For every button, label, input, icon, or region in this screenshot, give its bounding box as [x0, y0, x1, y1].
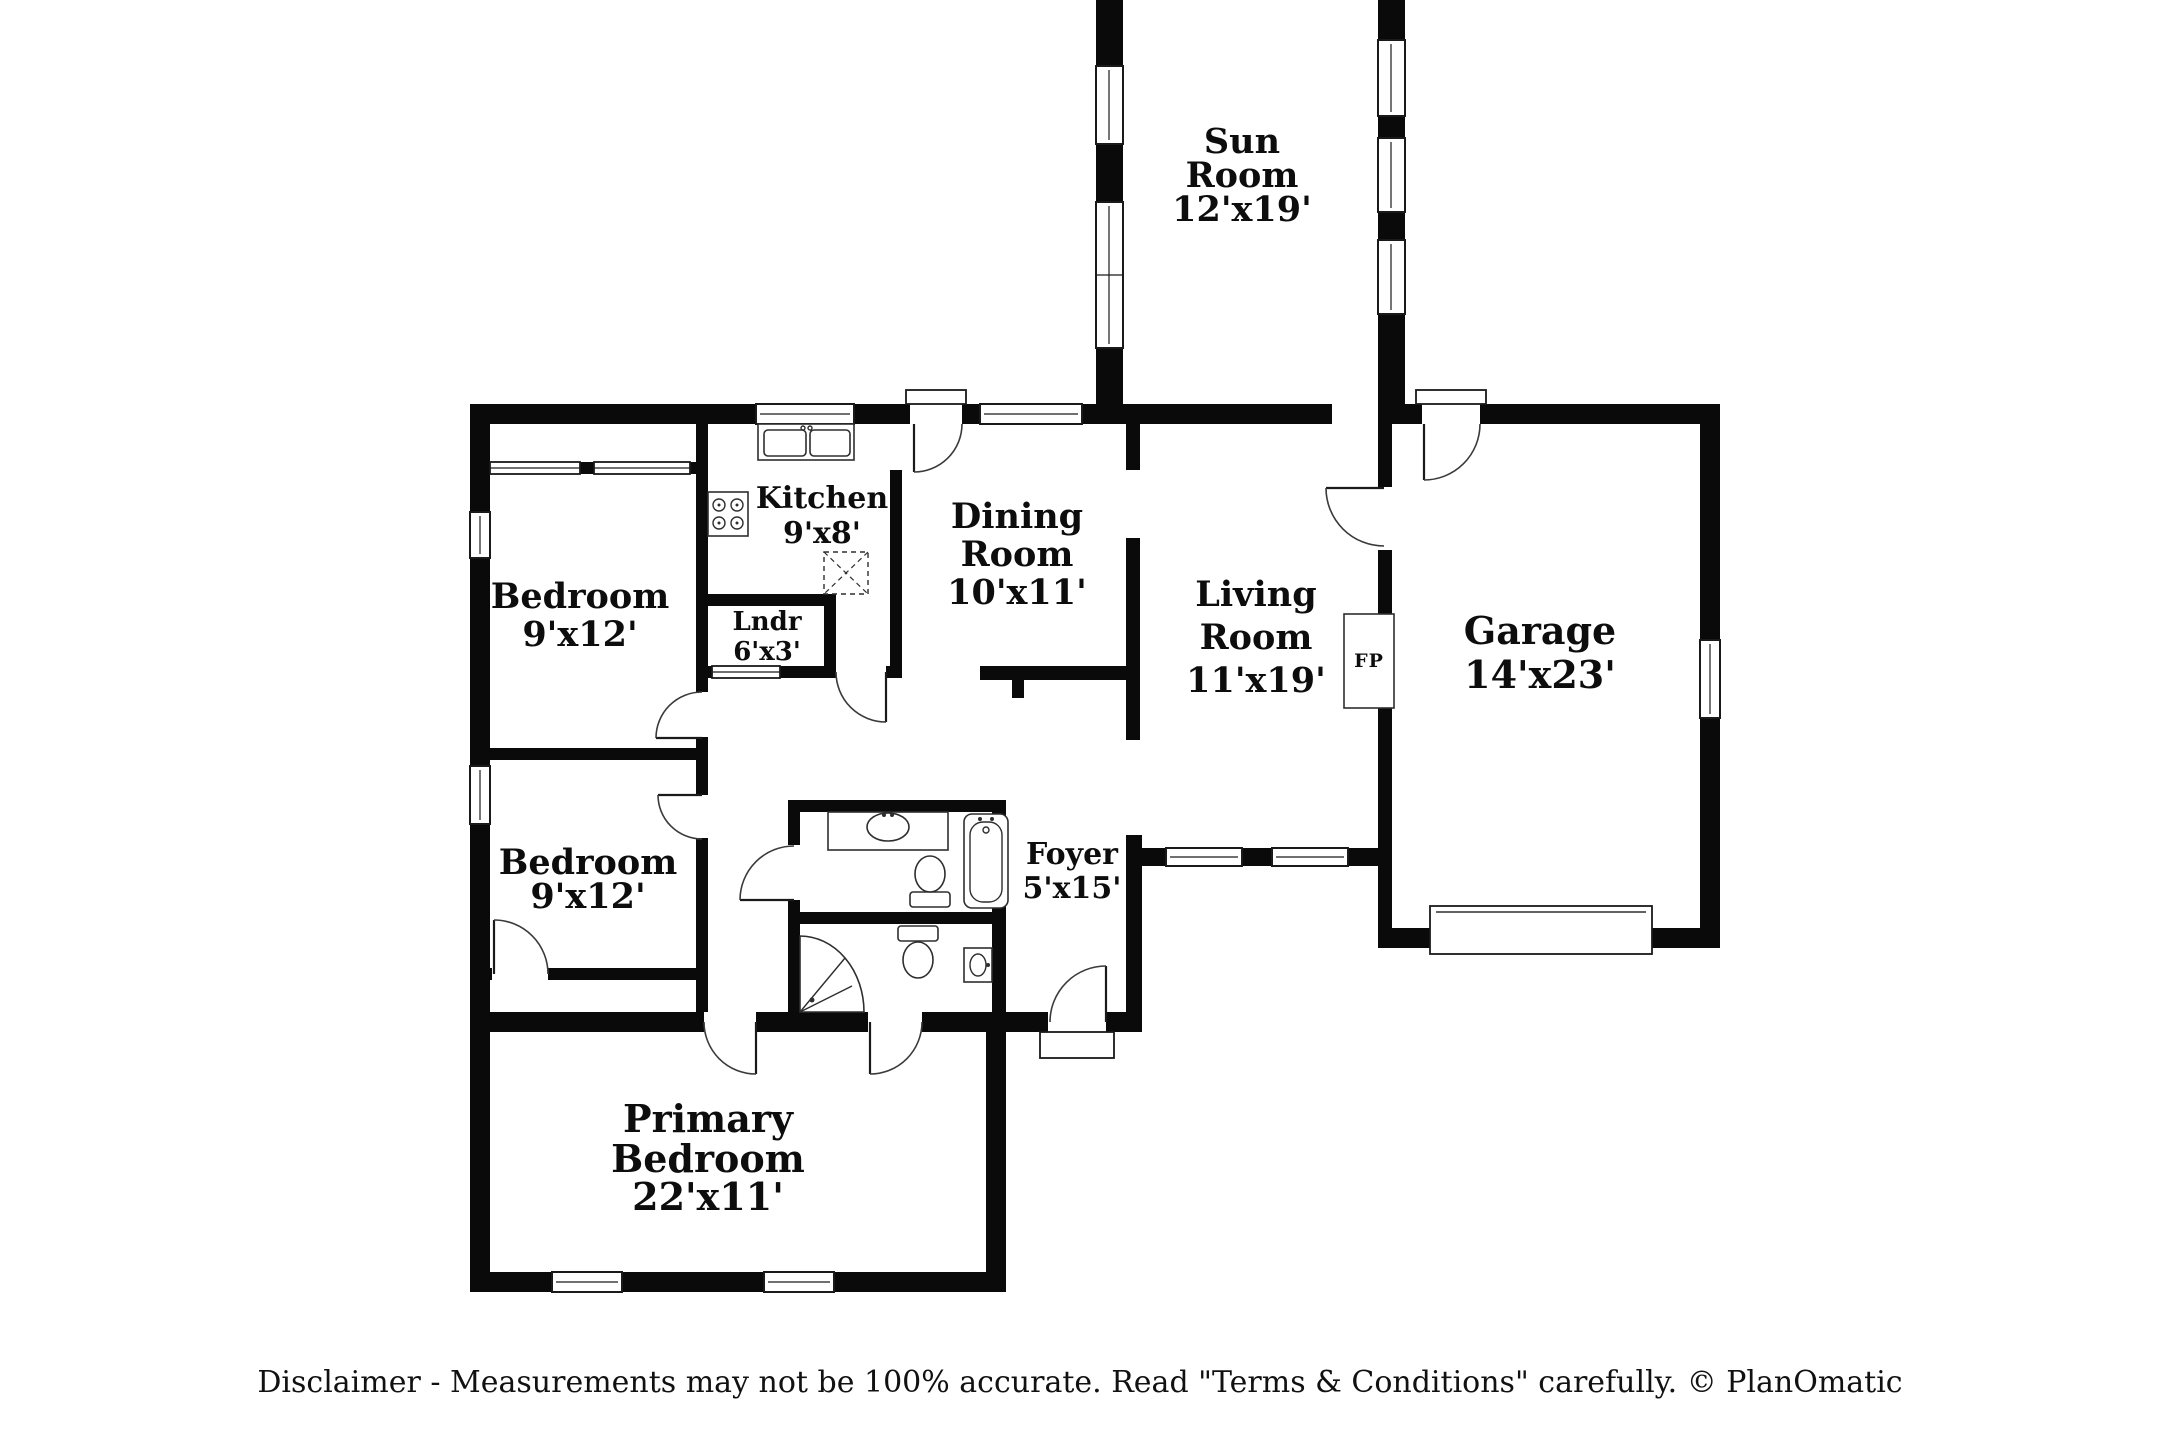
room-name: Lndr [732, 607, 801, 637]
window-icon [552, 1272, 622, 1292]
room-label-garage: Garage 14'x23' [1464, 608, 1616, 697]
window-icon [980, 404, 1082, 424]
room-name: Living [1195, 574, 1316, 615]
stove-icon [708, 492, 748, 536]
window-icon [470, 512, 490, 558]
room-label-dining-room: Dining Room 10'x11' [947, 496, 1087, 613]
sliding-door-icon [594, 462, 690, 474]
room-name: Dining [951, 496, 1083, 537]
window-icon [764, 1272, 834, 1292]
bathtub-icon [964, 814, 1008, 908]
room-name: Garage [1464, 608, 1616, 653]
room-dimensions: 9'x12' [522, 614, 637, 655]
room-name: Foyer [1026, 837, 1119, 872]
room-dimensions: 9'x8' [783, 516, 861, 551]
room-dimensions: 12'x19' [1172, 189, 1312, 230]
window-icon [1700, 640, 1720, 718]
window-icon [756, 404, 854, 424]
room-label-laundry: Lndr 6'x3' [732, 607, 801, 667]
room-label-foyer: Foyer 5'x15' [1023, 837, 1122, 906]
sliding-door-icon [712, 666, 780, 678]
window-icon [1272, 848, 1348, 866]
room-name: Kitchen [756, 481, 888, 516]
disclaimer-text: Disclaimer - Measurements may not be 100… [257, 1365, 1902, 1400]
floor-plan-canvas: FP Sun Room 12'x19' Kitchen 9'x8' Dining… [0, 0, 2160, 1440]
room-name: Room [1200, 617, 1313, 658]
room-dimensions: 14'x23' [1464, 652, 1616, 697]
vanity-sink-icon [828, 812, 948, 850]
room-label-primary-bedroom: Primary Bedroom 22'x11' [611, 1096, 805, 1219]
fireplace-label: FP [1354, 650, 1384, 672]
room-dimensions: 10'x11' [947, 572, 1087, 613]
garage-door [1430, 906, 1652, 954]
room-name: Bedroom [491, 576, 670, 617]
room-dimensions: 9'x12' [530, 876, 645, 917]
window-icon [1096, 66, 1123, 144]
fireplace: FP [1344, 614, 1394, 708]
window-icon [1378, 240, 1405, 314]
window-icon [1166, 848, 1242, 866]
room-dimensions: 22'x11' [632, 1174, 784, 1219]
room-dimensions: 11'x19' [1186, 660, 1326, 701]
room-dimensions: 5'x15' [1023, 871, 1122, 906]
room-name: Primary [623, 1096, 794, 1141]
window-icon [1378, 138, 1405, 212]
room-name: Room [961, 534, 1074, 575]
room-dimensions: 6'x3' [733, 637, 801, 667]
page-background [0, 0, 2160, 1440]
window-icon [1096, 202, 1123, 348]
sliding-door-icon [490, 462, 580, 474]
window-icon [470, 766, 490, 824]
room-label-living-room: Living Room 11'x19' [1186, 574, 1326, 701]
wall-sink-icon [964, 948, 992, 982]
floor-plan-page: FP Sun Room 12'x19' Kitchen 9'x8' Dining… [0, 0, 2160, 1440]
dashed-appliance-box [824, 552, 868, 594]
kitchen-sink-icon [758, 424, 854, 460]
window-icon [1378, 40, 1405, 116]
